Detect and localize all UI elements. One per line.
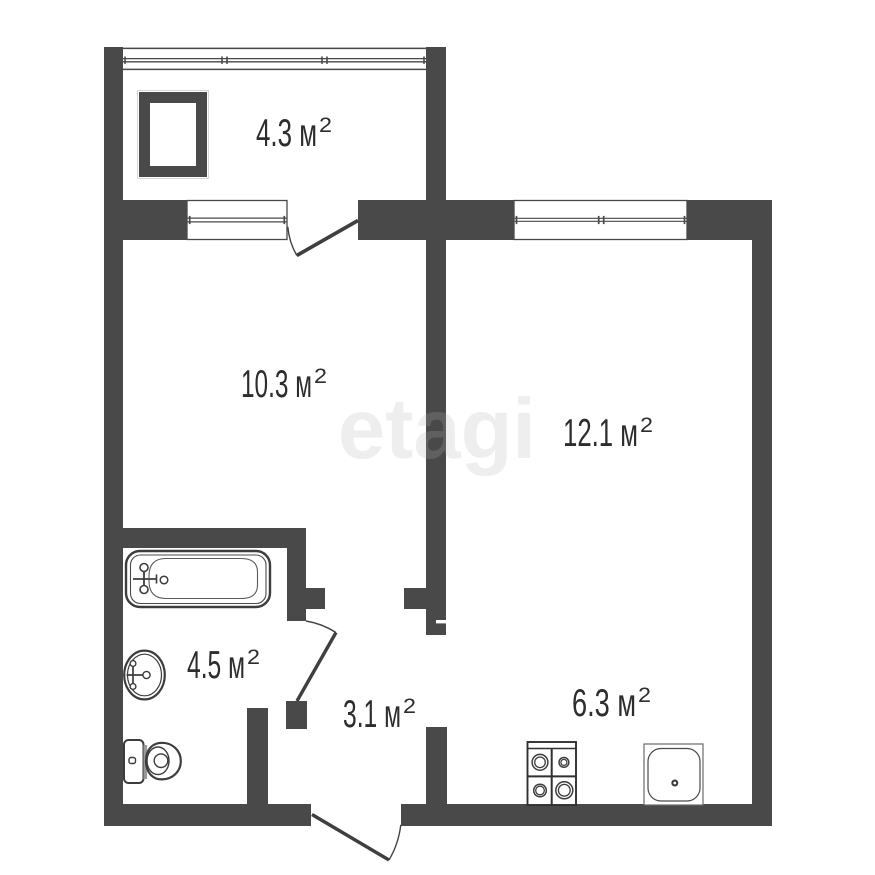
svg-text:12.1 м: 12.1 м (563, 412, 638, 455)
svg-text:etagi: etagi (338, 382, 536, 477)
svg-text:4.3 м: 4.3 м (256, 112, 317, 155)
svg-text:2: 2 (403, 695, 416, 718)
svg-text:2: 2 (314, 365, 327, 388)
svg-text:2: 2 (247, 646, 260, 669)
svg-text:2: 2 (638, 684, 651, 707)
svg-text:2: 2 (319, 114, 332, 137)
svg-text:6.3 м: 6.3 м (572, 682, 636, 725)
svg-text:10.3 м: 10.3 м (241, 363, 312, 406)
svg-text:2: 2 (640, 414, 653, 437)
svg-text:3.1 м: 3.1 м (343, 693, 401, 736)
svg-text:4.5 м: 4.5 м (187, 644, 245, 687)
